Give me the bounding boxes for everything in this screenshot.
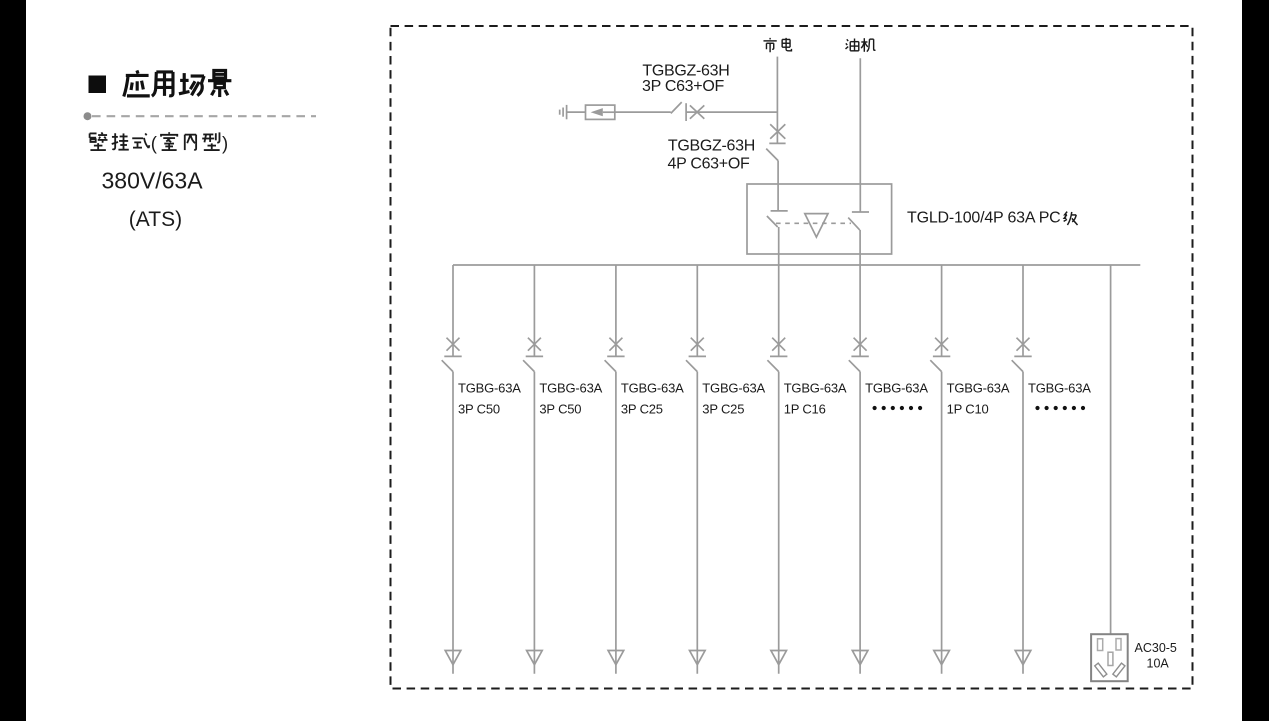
svg-text:1P C16: 1P C16 bbox=[784, 401, 826, 416]
svg-text:TGBG-63A: TGBG-63A bbox=[865, 380, 928, 395]
svg-text:TGBGZ-63H: TGBGZ-63H bbox=[642, 62, 729, 79]
svg-text:TGLD-100/4P 63A PC: TGLD-100/4P 63A PC bbox=[907, 209, 1061, 226]
svg-text:3P C25: 3P C25 bbox=[702, 401, 744, 416]
svg-text:4P C63+OF: 4P C63+OF bbox=[668, 155, 750, 172]
svg-text:TGBG-63A: TGBG-63A bbox=[702, 380, 765, 395]
svg-text:TGBG-63A: TGBG-63A bbox=[539, 380, 602, 395]
svg-text:3P C50: 3P C50 bbox=[458, 401, 500, 416]
svg-text:(: ( bbox=[151, 133, 158, 154]
svg-text:3P C25: 3P C25 bbox=[621, 401, 663, 416]
svg-text:3P C50: 3P C50 bbox=[539, 401, 581, 416]
svg-text:1P C10: 1P C10 bbox=[947, 401, 989, 416]
svg-text:380V/63A: 380V/63A bbox=[102, 168, 204, 194]
svg-text:TGBG-63A: TGBG-63A bbox=[1028, 380, 1091, 395]
svg-text:TGBG-63A: TGBG-63A bbox=[947, 380, 1010, 395]
svg-text:AC30-5: AC30-5 bbox=[1135, 641, 1177, 655]
svg-text:3P C63+OF: 3P C63+OF bbox=[642, 78, 724, 95]
svg-text:): ) bbox=[222, 133, 228, 154]
svg-text:TGBG-63A: TGBG-63A bbox=[458, 380, 521, 395]
svg-text:TGBGZ-63H: TGBGZ-63H bbox=[668, 138, 755, 155]
svg-text:TGBG-63A: TGBG-63A bbox=[621, 380, 684, 395]
svg-text:TGBG-63A: TGBG-63A bbox=[784, 380, 847, 395]
svg-text:(ATS): (ATS) bbox=[129, 208, 182, 231]
svg-text:10A: 10A bbox=[1147, 656, 1170, 670]
